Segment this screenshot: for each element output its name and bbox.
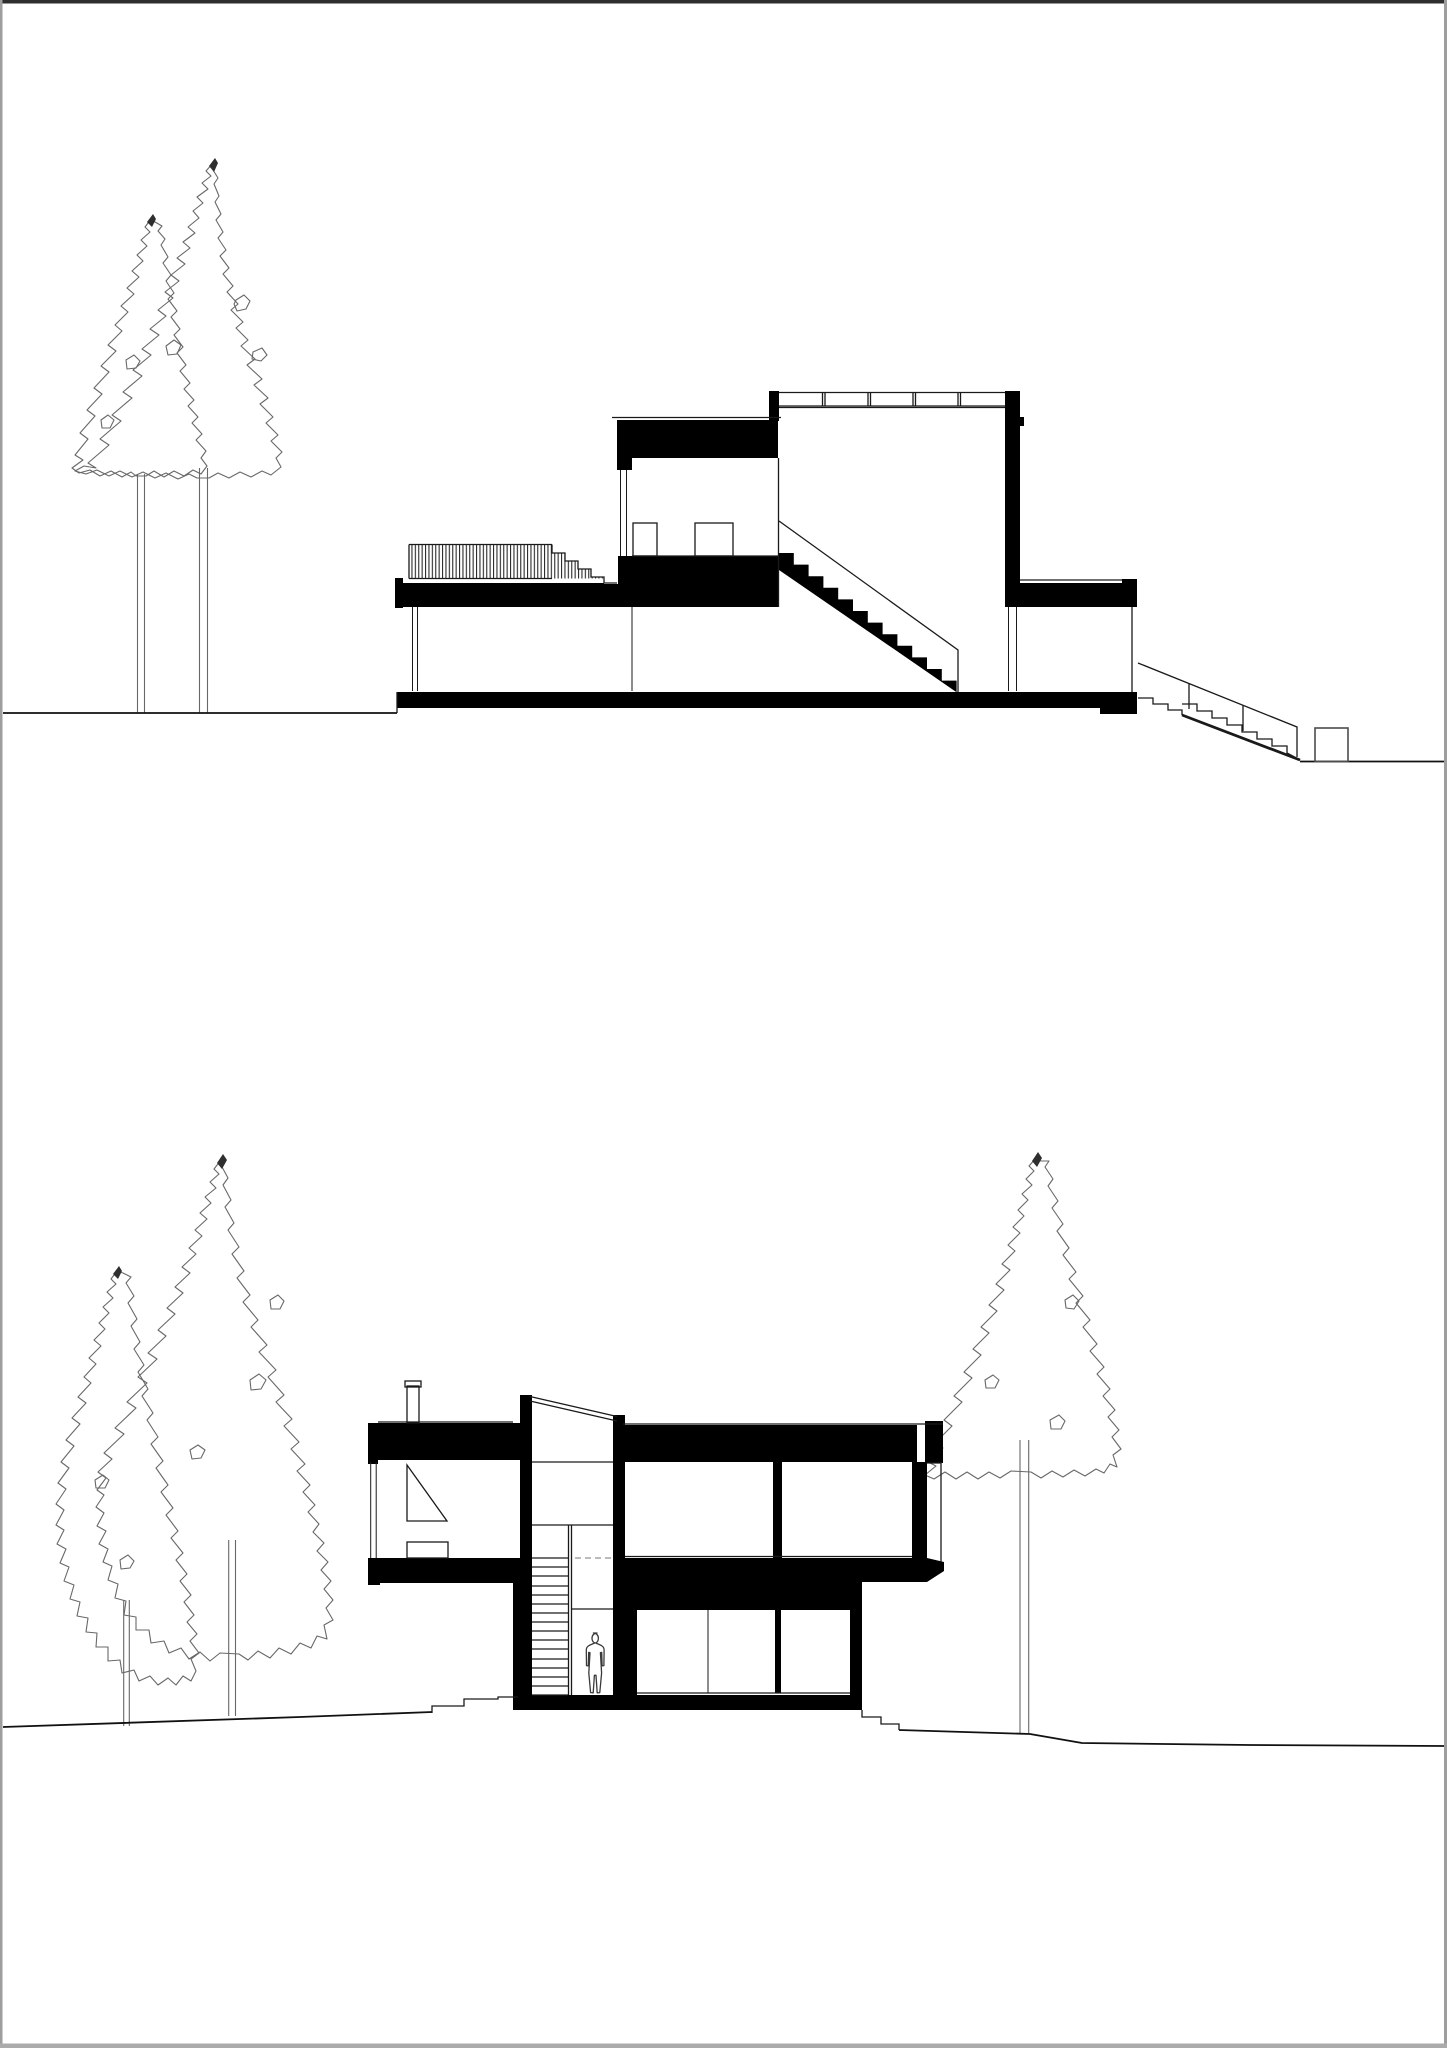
- sheet-border-bottom: [0, 2044, 1447, 2048]
- upper-window-mullion: [773, 1462, 782, 1558]
- mid-floor-slab: [617, 556, 778, 607]
- stair-core-wall-lower: [513, 1583, 532, 1710]
- terrace-edge-lip: [1122, 579, 1137, 588]
- sheet-border-left: [0, 0, 3, 2048]
- deck-edge-post: [395, 578, 403, 608]
- right-wing-roof-slab: [623, 1425, 917, 1462]
- section-drawings-canvas: [0, 0, 1447, 2048]
- base-slab-step: [1100, 708, 1137, 714]
- tall-block-right-wall: [1005, 391, 1020, 607]
- right-roof-parapet: [925, 1421, 943, 1463]
- deck-floor-slab: [403, 583, 617, 607]
- left-wing-floor-slab: [368, 1558, 520, 1583]
- upper-right-wall: [912, 1462, 927, 1562]
- left-wing-roof-parapet: [368, 1423, 378, 1464]
- upper-left-roof-slab: [617, 420, 778, 458]
- terrace-slab: [1020, 583, 1137, 607]
- wall-ledge: [1018, 417, 1024, 426]
- sheet-border-top: [0, 0, 1447, 4]
- lower-window-mullion: [775, 1610, 781, 1693]
- paper-background: [0, 0, 1447, 2048]
- lower-right-wall: [850, 1582, 862, 1710]
- base-floor-slab: [397, 692, 1137, 708]
- lower-left-wall: [613, 1582, 637, 1697]
- stair-core-wall: [520, 1395, 532, 1583]
- base-floor-slab: [518, 1695, 862, 1710]
- drawing-sheet: [0, 0, 1447, 2048]
- lower-header-band: [637, 1572, 862, 1610]
- left-wing-floor-edge: [368, 1558, 380, 1585]
- left-wing-roof-slab: [368, 1423, 520, 1460]
- roof-railing-post-left: [769, 391, 779, 421]
